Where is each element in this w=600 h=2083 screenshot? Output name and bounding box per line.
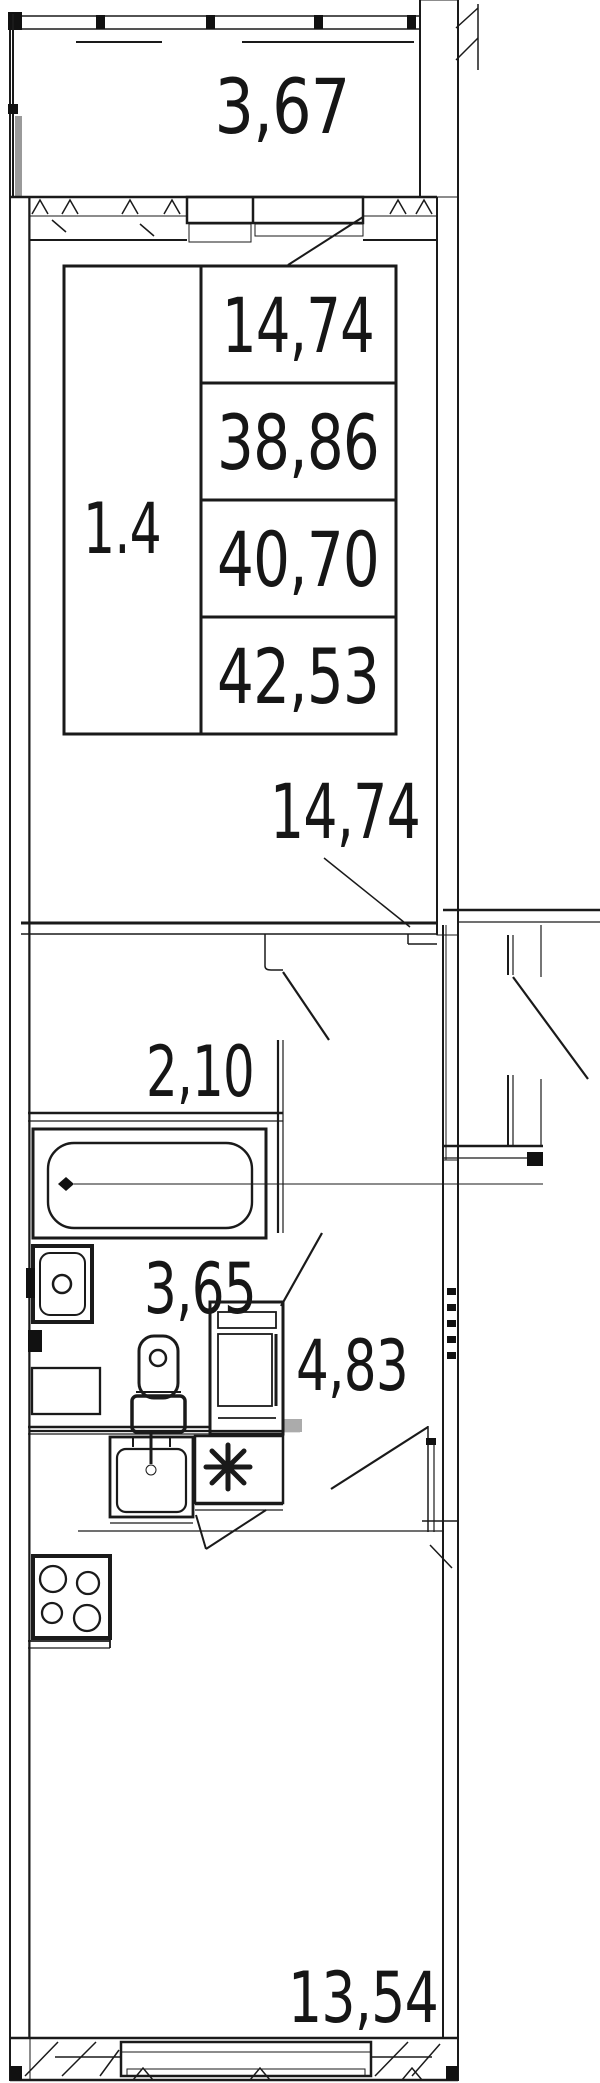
break-mark xyxy=(456,38,478,60)
living-room-area-label: 14,74 xyxy=(270,767,420,856)
kitchen-door-swing-icon xyxy=(196,1515,206,1549)
sink-drain xyxy=(146,1465,156,1475)
left-wall-hatch xyxy=(10,197,30,2080)
living-room: 14,74 xyxy=(21,767,437,970)
hatch-tick xyxy=(430,1545,452,1568)
stamp-area-row-2: 40,70 xyxy=(217,515,379,604)
refrigerator-icon xyxy=(195,1436,283,1510)
room-door-swing-icon xyxy=(331,1427,428,1489)
insulation-mark xyxy=(164,200,180,214)
balcony-left-joint xyxy=(8,104,18,114)
floor-plan: 3,67 1.4 14,74 38,86 40,70 42,53 xyxy=(0,0,600,2083)
insulation-mark xyxy=(250,2068,270,2080)
glazing-mullion xyxy=(8,12,22,30)
washing-machine-icon xyxy=(32,1368,100,1414)
insulation-mark xyxy=(62,200,78,214)
floor-plan-drawing: 3,67 1.4 14,74 38,86 40,70 42,53 xyxy=(0,0,600,2083)
kitchen-living-area-label: 13,54 xyxy=(288,1957,438,2039)
stove-burner xyxy=(77,1572,99,1594)
glazing-mullion xyxy=(314,15,323,29)
wall-stub xyxy=(283,1419,302,1432)
hallway: 4,83 xyxy=(296,910,600,1568)
entrance-door-swing-icon xyxy=(513,977,588,1079)
kitchen-door-swing-icon xyxy=(206,1510,266,1549)
top-right-wall-hatch xyxy=(420,0,458,197)
bathtub-drain xyxy=(58,1177,74,1191)
kitchen-living-room: 13,54 xyxy=(288,1957,438,2039)
door-swing-icon xyxy=(281,1233,322,1306)
leader-line xyxy=(324,858,410,927)
toilet-icon xyxy=(132,1336,185,1432)
balcony-area-label: 3,67 xyxy=(215,62,350,151)
shaft-dash xyxy=(447,1336,456,1343)
window xyxy=(121,2042,371,2076)
door-hinge xyxy=(426,1438,436,1445)
insulation-mark xyxy=(122,200,138,214)
storage-area-label: 2,10 xyxy=(146,1031,254,1113)
shaft-dash xyxy=(447,1304,456,1311)
door-swing-icon xyxy=(283,972,329,1040)
kitchen-sink-icon xyxy=(110,1434,193,1523)
door-jamb xyxy=(265,934,283,970)
washbasin-icon xyxy=(26,1246,92,1322)
window-sill xyxy=(255,224,363,236)
bottom-wall xyxy=(10,2038,458,2080)
stamp-area-row-3: 42,53 xyxy=(217,632,379,721)
insulation-mark xyxy=(32,200,48,214)
washbasin-inner xyxy=(40,1253,85,1315)
corner-block xyxy=(10,2066,22,2080)
stove-icon xyxy=(28,1556,110,1648)
insulation-mark xyxy=(390,200,406,214)
apartment-number: 1.4 xyxy=(83,488,161,570)
balcony-wall-and-window xyxy=(10,197,437,265)
refrigerator-star-icon xyxy=(206,1445,250,1489)
pipe-stub xyxy=(28,1330,42,1352)
balcony-left-pier xyxy=(15,116,22,196)
apartment-stamp: 1.4 14,74 38,86 40,70 42,53 xyxy=(64,266,396,734)
washbasin-tap xyxy=(53,1275,71,1293)
insulation-mark xyxy=(52,220,66,232)
hatch-tick xyxy=(100,2050,119,2076)
hallway-area-label: 4,83 xyxy=(296,1325,408,1407)
insulation-mark xyxy=(140,224,154,236)
glazing-mullion xyxy=(96,15,105,29)
duct-cabinet-inner xyxy=(218,1334,272,1406)
insulation-mark xyxy=(133,2068,153,2080)
washbasin-mount xyxy=(26,1268,35,1298)
bathtub-inner xyxy=(48,1143,252,1228)
balcony: 3,67 xyxy=(8,12,420,197)
insulation-mark xyxy=(402,2068,422,2080)
hatch-tick xyxy=(412,2044,440,2076)
shaft-dash xyxy=(447,1288,456,1295)
bathroom-area-label: 3,65 xyxy=(144,1248,256,1330)
stamp-area-row-0: 14,74 xyxy=(222,281,374,370)
shaft-dash xyxy=(447,1352,456,1359)
stove-burner xyxy=(74,1605,100,1631)
glazing-mullion xyxy=(206,15,215,29)
hatch-tick xyxy=(62,2042,96,2076)
stove-burner xyxy=(40,1566,66,1592)
corner-block xyxy=(446,2066,458,2080)
break-mark xyxy=(456,8,478,28)
balcony-door-threshold xyxy=(189,224,251,242)
hatch-tick xyxy=(375,2042,408,2076)
shaft-dash xyxy=(447,1320,456,1327)
wall-joint xyxy=(527,1152,543,1166)
stove-burner xyxy=(42,1603,62,1623)
balcony-window xyxy=(187,197,363,223)
insulation-mark xyxy=(416,200,432,214)
stamp-area-row-1: 38,86 xyxy=(217,398,379,487)
toilet-bowl-detail xyxy=(150,1350,166,1366)
storage-room: 2,10 xyxy=(28,972,329,1233)
glazing-mullion xyxy=(407,15,416,29)
right-wall-upper-hatch xyxy=(437,197,458,935)
